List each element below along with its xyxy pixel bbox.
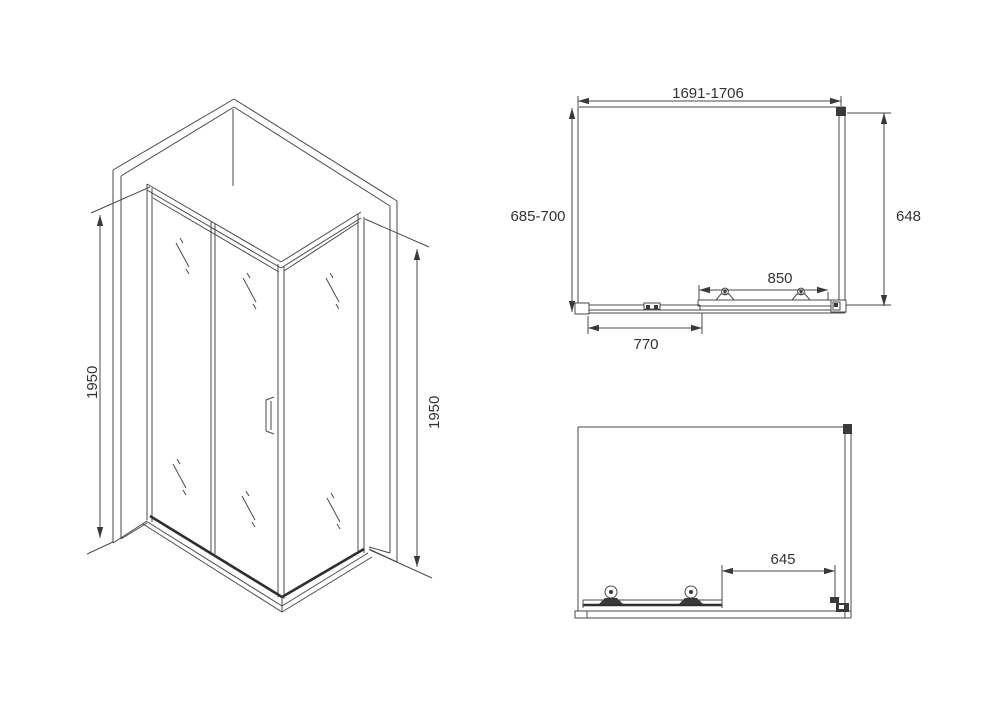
- track-stopper: [836, 603, 849, 612]
- dimension-opening: 645: [722, 551, 839, 603]
- top-frame: [147, 184, 361, 272]
- door-rollers-front-view: [599, 586, 703, 604]
- dim-sliding-door-label: 850: [767, 270, 792, 287]
- top-view-outline: [578, 107, 846, 313]
- wall-profile-top: [843, 424, 852, 434]
- dim-fixed-panel-label: 770: [633, 336, 658, 353]
- dimension-fixed-panel: 770: [588, 313, 702, 353]
- dim-overall-width-label: 1691-1706: [672, 85, 744, 102]
- fixed-panel-bar: [575, 303, 700, 314]
- dim-side-panel-label: 648: [896, 208, 921, 225]
- dimension-overall-width: 1691-1706: [578, 85, 841, 106]
- technical-drawing-canvas: 1950 1950: [0, 0, 1000, 707]
- shower-enclosure-drawing: 1950 1950: [0, 0, 1000, 707]
- dim-opening-label: 645: [770, 551, 795, 568]
- dim-height-left-label: 1950: [84, 366, 101, 399]
- top-view-drawing: 1691-1706 685-700 648 850: [510, 85, 921, 353]
- door-handle: [266, 397, 274, 434]
- dim-height-right-label: 1950: [426, 396, 443, 429]
- front-view-drawing: 645: [575, 424, 852, 618]
- dimension-overall-depth: 685-700: [510, 108, 575, 312]
- dimension-height-right: 1950: [365, 219, 443, 578]
- base-track: [143, 516, 372, 612]
- dimension-side-panel: 648: [846, 113, 921, 306]
- dimension-height-left: 1950: [84, 187, 150, 554]
- glass-reflection-marks: [173, 238, 340, 529]
- isometric-view-drawing: 1950 1950: [84, 99, 443, 612]
- wall-profile-section: [836, 107, 846, 116]
- wall-panels: [113, 99, 397, 562]
- frame-profiles: [147, 184, 364, 599]
- dim-overall-depth-label: 685-700: [510, 208, 565, 225]
- dimension-sliding-door: 850: [699, 270, 828, 300]
